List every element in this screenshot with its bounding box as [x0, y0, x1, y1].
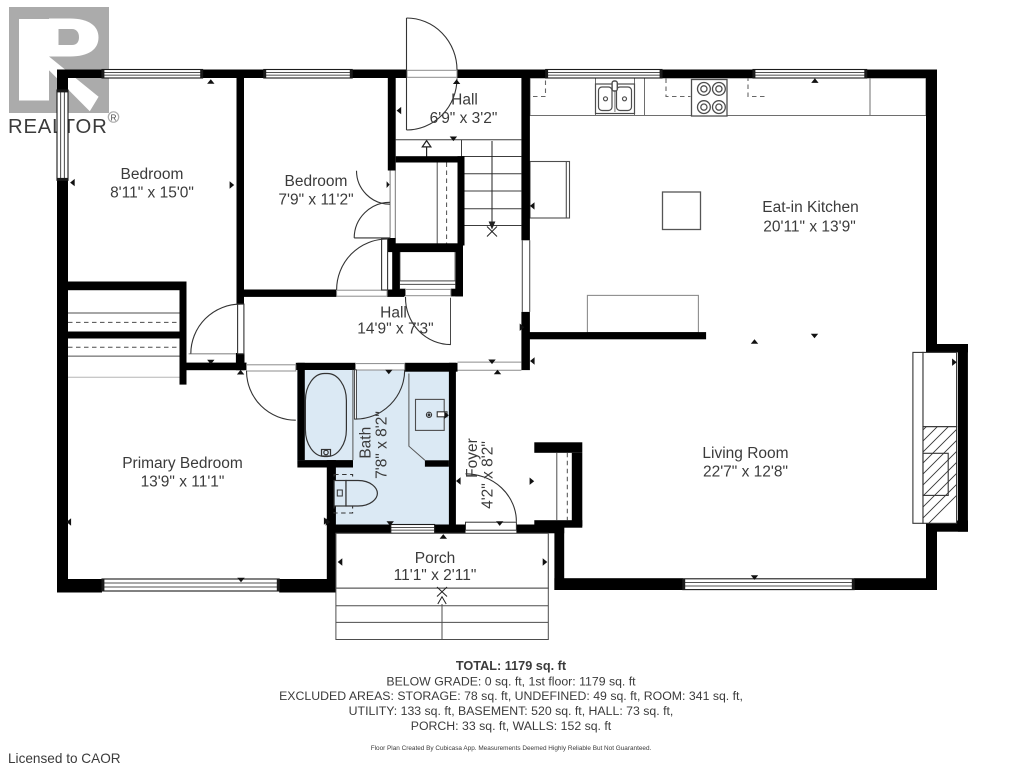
- svg-text:20'11" x 13'9": 20'11" x 13'9": [763, 219, 855, 236]
- svg-text:8'11" x 15'0": 8'11" x 15'0": [110, 185, 194, 202]
- svg-text:14'9" x 7'3": 14'9" x 7'3": [357, 321, 433, 338]
- svg-text:7'8" x 8'2": 7'8" x 8'2": [374, 411, 391, 479]
- svg-text:EXCLUDED AREAS: STORAGE: 78 sq: EXCLUDED AREAS: STORAGE: 78 sq. ft, UNDE…: [279, 689, 743, 703]
- svg-text:4'2" x 8'2": 4'2" x 8'2": [480, 441, 497, 509]
- svg-text:UTILITY: 133 sq. ft, BASEMENT:: UTILITY: 133 sq. ft, BASEMENT: 520 sq. f…: [349, 704, 674, 718]
- svg-text:Hall: Hall: [451, 92, 478, 109]
- svg-text:Porch: Porch: [415, 550, 456, 567]
- svg-text:Primary Bedroom: Primary Bedroom: [122, 455, 243, 472]
- svg-text:11'1" x 2'11": 11'1" x 2'11": [394, 567, 477, 584]
- svg-text:22'7" x 12'8": 22'7" x 12'8": [703, 464, 788, 481]
- svg-text:Eat-in Kitchen: Eat-in Kitchen: [762, 199, 859, 216]
- svg-text:Foyer: Foyer: [464, 438, 481, 478]
- svg-text:13'9" x 11'1": 13'9" x 11'1": [141, 474, 225, 491]
- svg-text:TOTAL: 1179 sq. ft: TOTAL: 1179 sq. ft: [456, 659, 567, 673]
- svg-text:Bath: Bath: [358, 427, 375, 459]
- svg-text:Licensed to CAOR: Licensed to CAOR: [8, 751, 121, 766]
- svg-text:7'9" x 11'2": 7'9" x 11'2": [278, 192, 353, 209]
- svg-text:Bedroom: Bedroom: [285, 173, 348, 190]
- svg-text:Floor Plan Created By Cubicasa: Floor Plan Created By Cubicasa App. Meas…: [371, 745, 652, 752]
- svg-text:BELOW GRADE: 0 sq. ft, 1st flo: BELOW GRADE: 0 sq. ft, 1st floor: 1179 s…: [386, 674, 636, 688]
- svg-text:Bedroom: Bedroom: [121, 166, 184, 183]
- svg-text:Hall: Hall: [380, 305, 407, 322]
- svg-text:R: R: [111, 114, 117, 123]
- svg-text:PORCH: 33 sq. ft, WALLS: 152 s: PORCH: 33 sq. ft, WALLS: 152 sq. ft: [411, 719, 612, 733]
- svg-text:Living Room: Living Room: [702, 445, 788, 462]
- svg-text:6'9" x 3'2": 6'9" x 3'2": [430, 110, 498, 127]
